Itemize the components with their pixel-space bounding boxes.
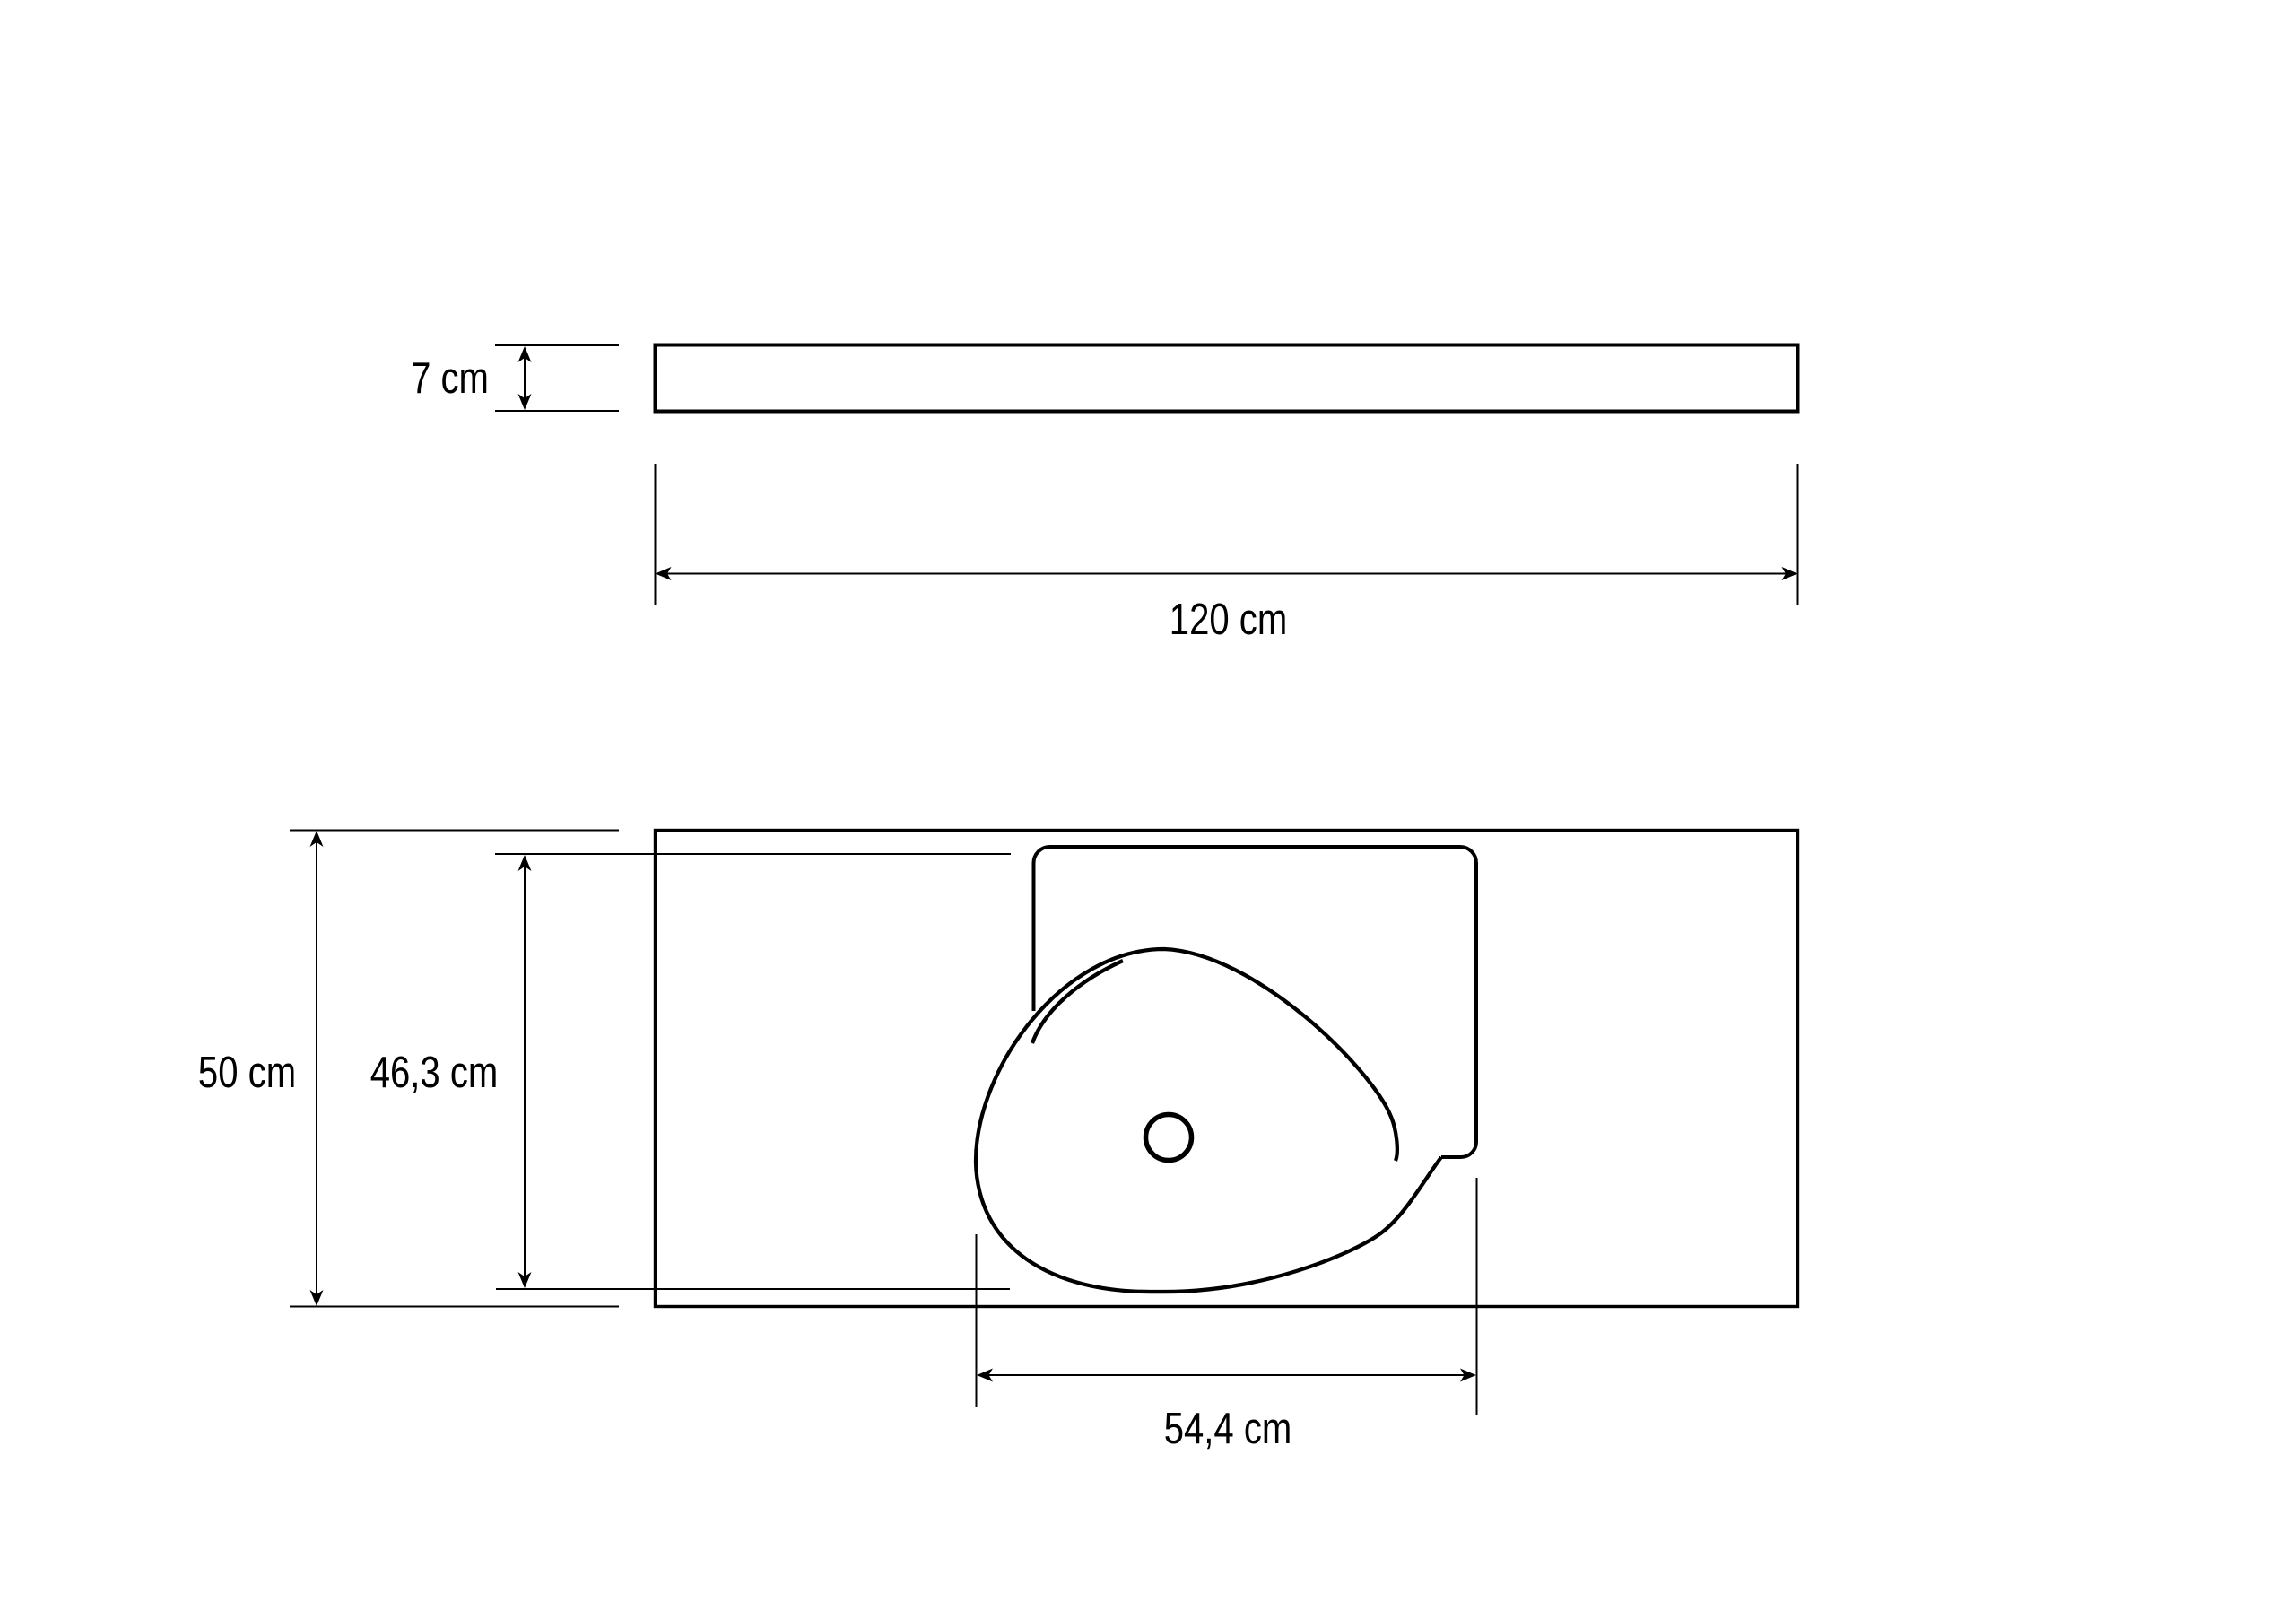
svg-text:7 cm: 7 cm <box>411 353 489 403</box>
svg-text:50 cm: 50 cm <box>198 1047 296 1097</box>
svg-text:54,4 cm: 54,4 cm <box>1164 1403 1292 1453</box>
svg-text:46,3 cm: 46,3 cm <box>370 1047 499 1097</box>
svg-text:120 cm: 120 cm <box>1170 594 1287 644</box>
